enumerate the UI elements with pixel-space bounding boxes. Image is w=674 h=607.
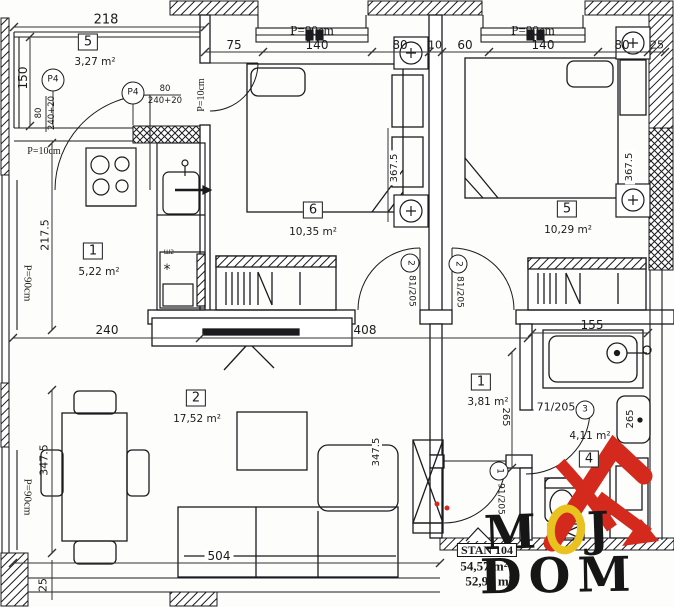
parapet-label: P=90cm — [22, 479, 33, 516]
vent-icon — [616, 184, 650, 217]
gross-area-label: 54,57 m² — [460, 560, 507, 573]
door-tag: 1 — [490, 462, 509, 481]
apartment-title: STAN 104 — [457, 543, 517, 557]
dim-label: 504 — [205, 550, 234, 562]
room-number-box: 6 — [303, 202, 323, 219]
dim-label: 10 — [428, 40, 442, 51]
dim-label: 140 — [306, 39, 329, 51]
kitchen-fixtures — [86, 143, 211, 310]
tv — [203, 329, 299, 335]
room-area-label: 5,22 m² — [78, 267, 119, 278]
room-area-label: 3,27 m² — [74, 57, 115, 68]
door-size-label: 81/205 — [407, 275, 416, 307]
bathtub — [543, 330, 643, 388]
dim-label: 367.5 — [390, 151, 400, 186]
window-tag-height: 240+20 — [148, 97, 182, 106]
dim-label: 25 — [38, 578, 49, 592]
bed — [465, 58, 618, 198]
coffee-table — [237, 412, 307, 470]
sink — [163, 172, 199, 214]
door-size-label: 91/205 — [496, 483, 505, 515]
room-number-box: 1 — [83, 243, 103, 260]
chair — [74, 541, 116, 564]
dim-label: 217.5 — [40, 219, 51, 251]
dim-label: 265 — [626, 409, 636, 428]
dim-label: 25 — [650, 40, 664, 51]
door-tag: 3 — [576, 401, 595, 420]
window-tag-width: 80 — [160, 85, 171, 94]
floorplan-linework — [0, 0, 674, 607]
parapet-label: P=90cm — [22, 265, 33, 302]
door-tag: 2 — [401, 254, 420, 273]
logo-roof-graphic — [435, 448, 660, 546]
dim-label: 265 — [500, 404, 510, 429]
dim-label: 347.5 — [372, 435, 382, 470]
room-number-box: 2 — [186, 390, 206, 407]
faucet-icon — [182, 160, 188, 166]
dim-label: 80 — [614, 39, 629, 51]
dim-label: 75 — [226, 39, 241, 51]
north-mark — [466, 528, 491, 541]
window-tag-width: 80 — [35, 108, 44, 119]
room-area-label: 4,11 m² — [569, 431, 610, 442]
window-tag: P4 — [122, 82, 145, 105]
dim-label: 150 — [17, 67, 29, 90]
dim-label: 367.5 — [625, 150, 635, 185]
cabinet-label: Ш2 — [164, 250, 174, 256]
door-size-label: 81/205 — [455, 276, 464, 308]
room-area-label: 10,35 m² — [289, 227, 337, 238]
windows — [2, 15, 662, 592]
sofa-chaise — [318, 445, 398, 511]
dining-table — [62, 413, 127, 541]
door-tag: 2 — [449, 255, 468, 274]
window-tag-height: 240+20 — [48, 96, 57, 130]
net-area-label: 52,93 m² — [465, 575, 512, 588]
nightstand — [620, 60, 646, 115]
room-number-box: 4 — [579, 451, 599, 468]
dim-label: 60 — [457, 39, 472, 51]
nightstand — [392, 75, 423, 127]
bed — [247, 64, 403, 212]
parapet-label: P=10cm — [197, 78, 207, 111]
dim-label: 140 — [532, 39, 555, 51]
door-size-label: 71/205 — [534, 402, 579, 413]
stove — [86, 148, 136, 206]
parapet-label: P=90cm — [511, 24, 554, 37]
room-number-box: 5 — [78, 34, 98, 51]
room-number-box: 5 — [557, 201, 577, 218]
chair — [74, 391, 116, 414]
chair — [127, 450, 149, 496]
parapet-label: P=10cm — [27, 147, 60, 157]
pillow — [567, 61, 613, 87]
dim-label: 240 — [96, 324, 119, 336]
asterisk-mark: * — [164, 263, 171, 277]
dim-label: 218 — [94, 14, 119, 27]
dim-label: 347.5 — [39, 444, 50, 476]
dim-label: 155 — [581, 319, 604, 331]
room-area-label: 10,29 m² — [544, 225, 592, 236]
dim-label: 80 — [392, 39, 407, 51]
dim-label: 408 — [354, 324, 377, 336]
sofa — [178, 507, 398, 577]
window-tag: P4 — [42, 69, 65, 92]
room-area-label: 17,52 m² — [173, 414, 221, 425]
living-furniture — [41, 318, 443, 577]
room-number-box: 1 — [471, 374, 491, 391]
pillow — [251, 68, 305, 96]
floor-plan: 218 150 217.5 347.5 25 P=90cm P=90cm 75 … — [0, 0, 674, 607]
parapet-label: P=90cm — [290, 24, 333, 37]
room-area-label: 3,81 m² — [467, 397, 508, 408]
vent-icon — [394, 195, 428, 227]
